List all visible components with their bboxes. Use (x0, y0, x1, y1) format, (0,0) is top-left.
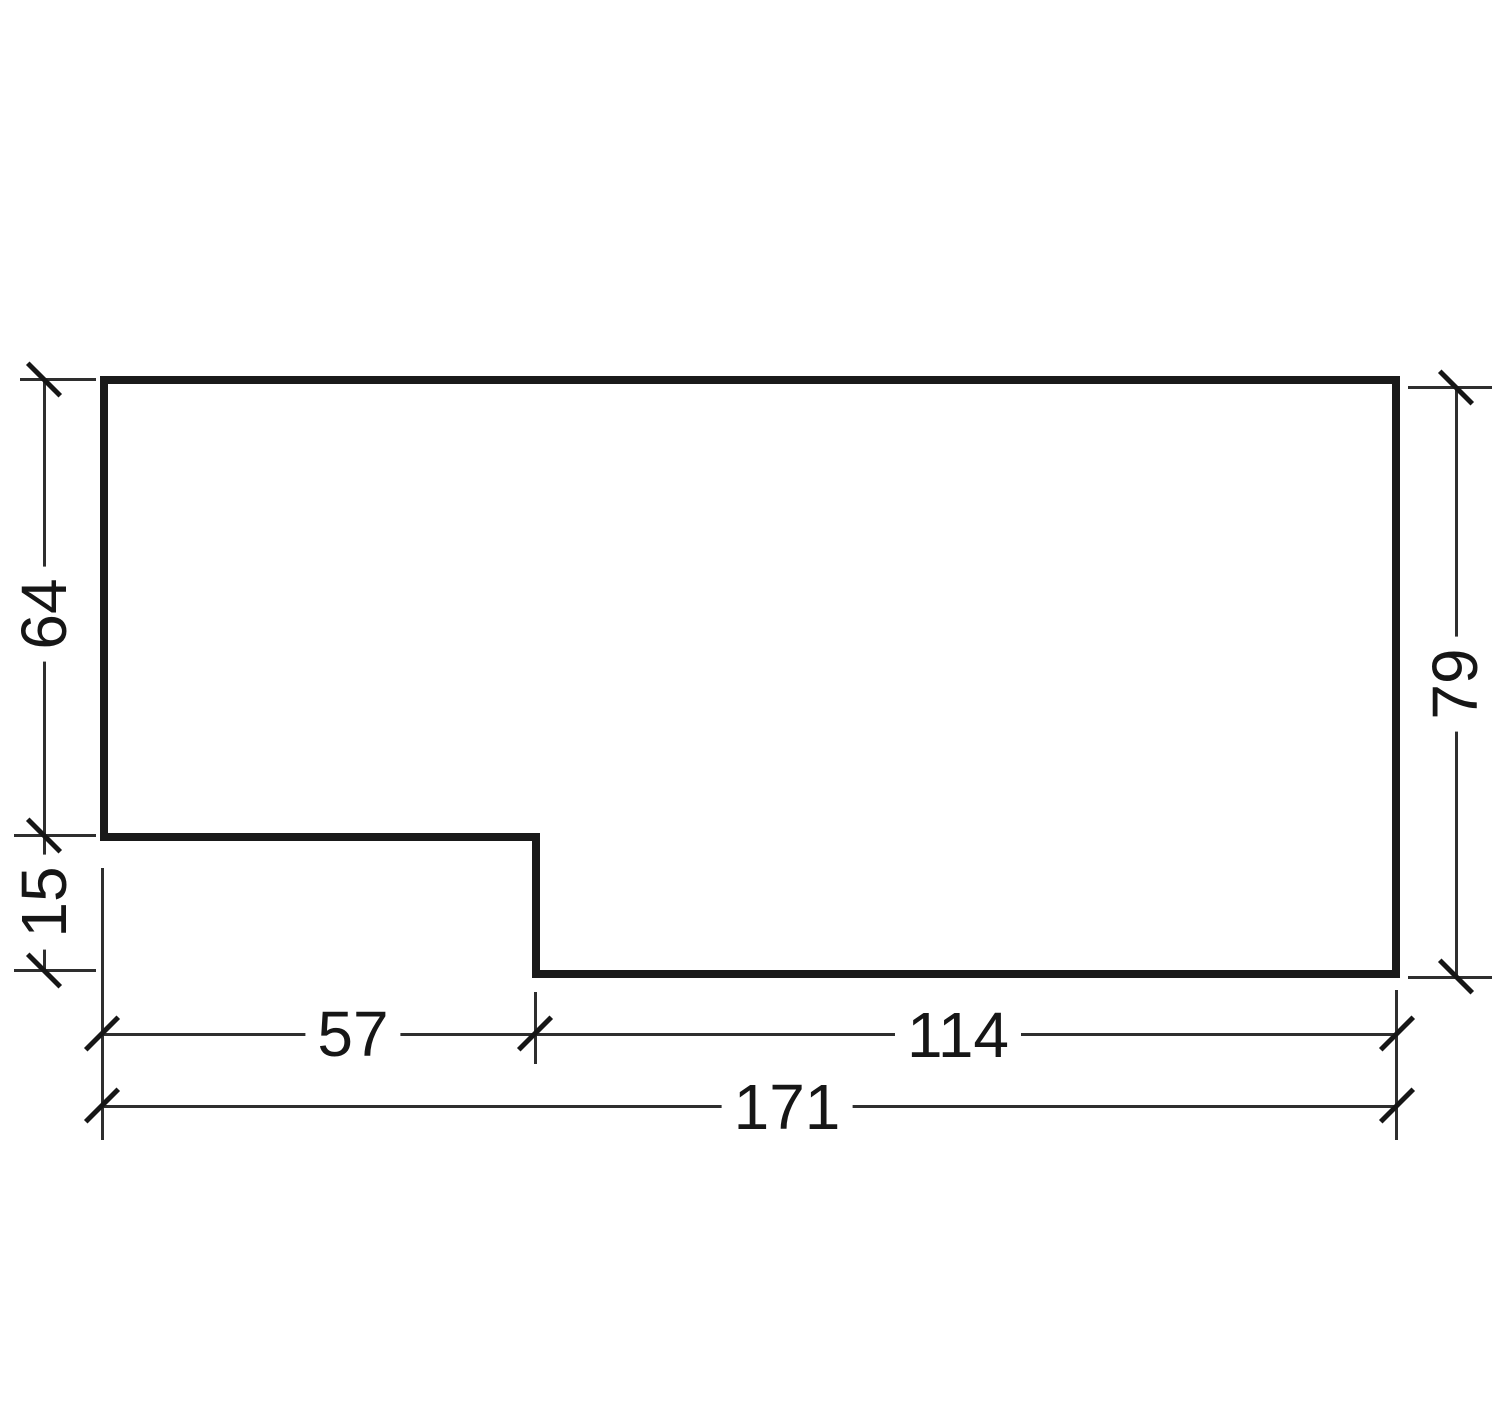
dim-label-bottom-total: 171 (722, 1073, 853, 1141)
outline-step-vertical-edge (532, 833, 540, 978)
dim-label-bottom-right: 114 (895, 1001, 1021, 1069)
dim-line-bottom-inner (100, 1033, 1398, 1036)
outline-right-edge (1392, 376, 1400, 978)
dim-label-left-lower: 15 (10, 854, 78, 949)
ext-line-left-bottom (14, 969, 96, 972)
outline-bottom-edge (532, 970, 1400, 978)
ext-line-left-top (20, 378, 96, 381)
outline-left-edge (100, 376, 108, 841)
dim-label-bottom-left: 57 (305, 1000, 400, 1068)
drawing-canvas: 64 15 79 57 114 171 (0, 0, 1500, 1427)
outline-step-horizontal-edge (100, 833, 540, 841)
ext-line-right-top (1408, 386, 1492, 389)
ext-line-right-bottom (1408, 976, 1492, 979)
dim-label-right: 79 (1421, 636, 1489, 731)
dim-label-left-upper: 64 (10, 566, 78, 661)
ext-line-bottom-right-vertical (1395, 990, 1398, 1140)
outline-top-edge (100, 376, 1400, 384)
ext-line-left-middle (14, 834, 96, 837)
